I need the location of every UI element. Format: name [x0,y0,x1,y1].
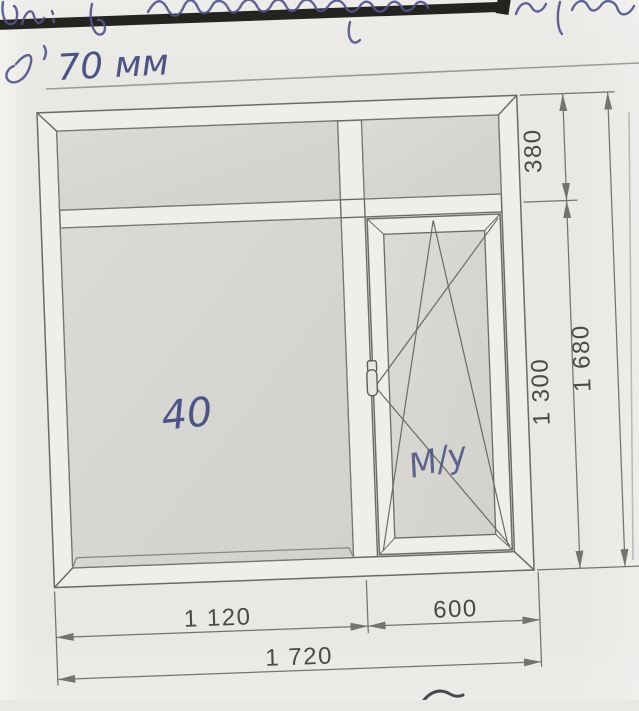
handwritten-note-sash: М/у [405,434,472,486]
descender-right [558,2,562,34]
handwritten-note-70mm: 70 мм [56,42,170,89]
descender-loop-2 [349,22,360,43]
scribble-word-right2 [572,1,634,14]
scribble-word-right [516,3,546,14]
tick-mark [44,46,46,59]
handwritten-note-40: 40 [159,389,214,440]
colon-mark [52,11,54,22]
ink-annotations: 70 мм 40 М/у [0,0,639,700]
cutoff-bottom-stroke [424,691,463,700]
heavy-border-bar [0,0,505,25]
page-edge-line [629,112,633,560]
letter-e-loop [6,55,31,82]
